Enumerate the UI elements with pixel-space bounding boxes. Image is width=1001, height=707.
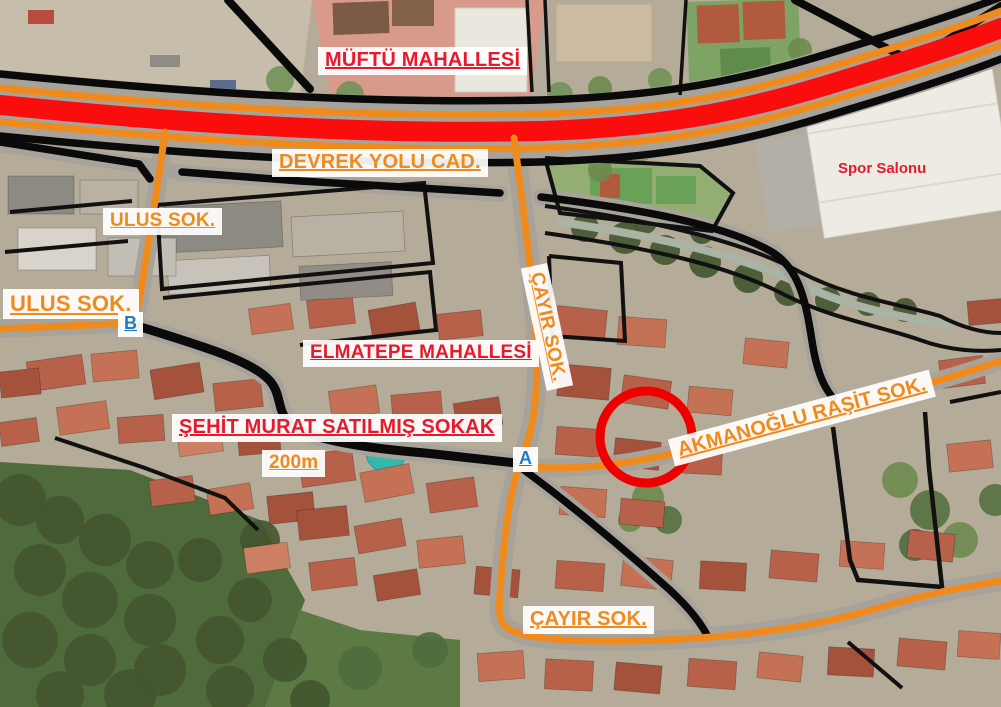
building-label-spor-salonu: Spor Salonu bbox=[838, 160, 926, 177]
street-label-ulus-upper: ULUS SOK. bbox=[103, 208, 222, 235]
street-label-sehit-murat: ŞEHİT MURAT SATILMIŞ SOKAK bbox=[172, 414, 502, 442]
district-label-muftu: MÜFTÜ MAHALLESİ bbox=[318, 47, 527, 75]
scale-label-200m: 200m bbox=[262, 450, 325, 477]
route-marker-b: B bbox=[118, 312, 143, 337]
aerial-map: MÜFTÜ MAHALLESİ DEVREK YOLU CAD. ULUS SO… bbox=[0, 0, 1001, 707]
street-label-devrek-yolu: DEVREK YOLU CAD. bbox=[272, 149, 488, 177]
district-label-elmatepe: ELMATEPE MAHALLESİ bbox=[303, 340, 539, 367]
street-label-cayir-bottom: ÇAYIR SOK. bbox=[523, 606, 654, 634]
route-marker-a: A bbox=[513, 447, 538, 472]
